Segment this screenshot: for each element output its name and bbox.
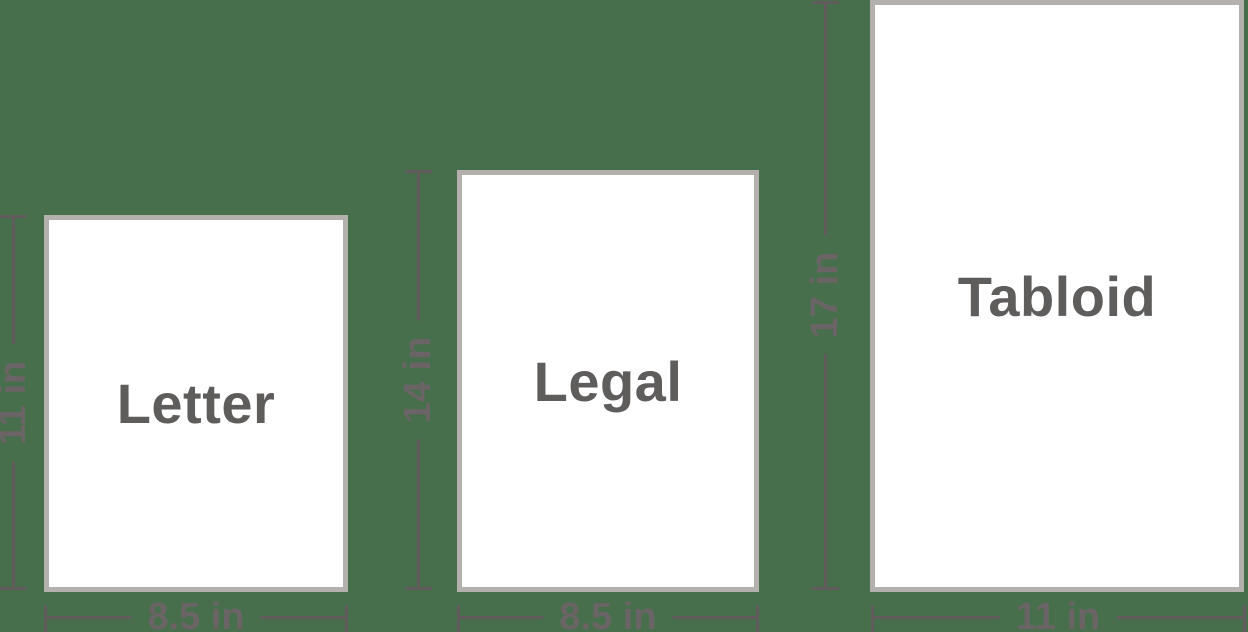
tabloid-width-dimension-right-tick [1243, 605, 1246, 632]
letter-width-dimension-left-tick [44, 605, 47, 632]
legal-height-dimension-top-tick [405, 170, 432, 173]
tabloid-width-value: 11 in [1000, 597, 1117, 632]
tabloid-height-value: 17 in [805, 236, 847, 355]
legal-sheet: Legal [457, 170, 759, 592]
legal-height-dimension-bottom-tick [405, 587, 432, 590]
tabloid-height-dimension-top-tick [812, 1, 839, 4]
letter-height-value: 11 in [0, 345, 35, 462]
tabloid-sheet: Tabloid [870, 0, 1244, 592]
tabloid-width-dimension-left-tick [871, 605, 874, 632]
legal-width-value: 8.5 in [543, 597, 672, 632]
letter-width-value: 8.5 in [131, 597, 260, 632]
legal-width-dimension-right-tick [756, 605, 759, 632]
legal-width-dimension-left-tick [457, 605, 460, 632]
letter-label: Letter [117, 371, 276, 436]
tabloid-label: Tabloid [958, 264, 1156, 329]
legal-height-value: 14 in [398, 321, 440, 440]
letter-height-dimension-bottom-tick [0, 587, 27, 590]
letter-height-dimension-top-tick [0, 215, 27, 218]
letter-sheet: Letter [44, 215, 348, 592]
letter-width-dimension-right-tick [345, 605, 348, 632]
legal-label: Legal [534, 349, 683, 414]
paper-size-comparison-diagram: Letter 11 in 8.5 in Legal 14 in 8.5 in T… [0, 0, 1248, 632]
tabloid-height-dimension-bottom-tick [812, 587, 839, 590]
